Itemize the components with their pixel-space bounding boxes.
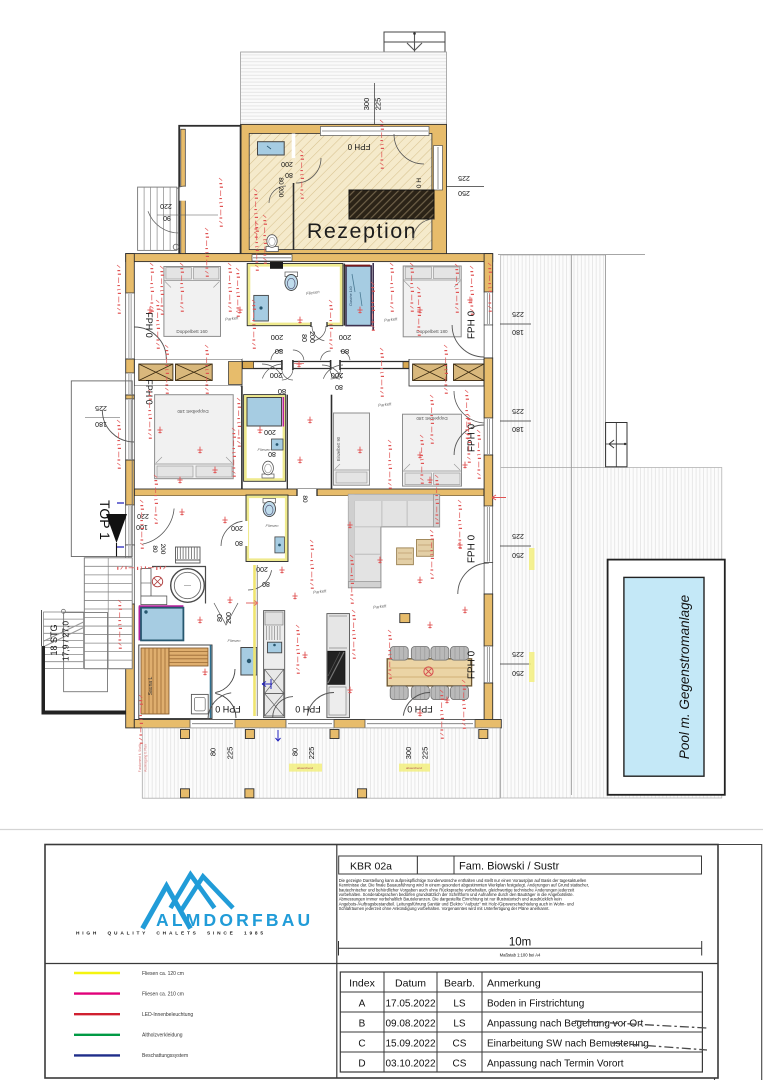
svg-text:LED-Innenbeleuchtung: LED-Innenbeleuchtung [142,1012,193,1018]
svg-text:Einzelbett 90: Einzelbett 90 [336,436,341,461]
svg-text:80: 80 [341,347,349,356]
svg-text:80: 80 [151,545,158,553]
svg-text:250: 250 [512,551,524,558]
svg-text:80: 80 [235,539,243,546]
svg-text:KBR 02a: KBR 02a [350,861,392,873]
svg-text:225: 225 [307,747,316,760]
svg-text:80: 80 [291,748,300,756]
svg-text:Index: Index [349,978,375,990]
svg-text:0 H: 0 H [416,178,423,188]
svg-text:250: 250 [458,189,470,196]
svg-text:200: 200 [277,187,284,198]
svg-text:200: 200 [256,565,268,572]
svg-text:D: D [358,1059,365,1070]
svg-text:Fliesen ca. 210 cm: Fliesen ca. 210 cm [142,991,184,997]
svg-text:FPH 0: FPH 0 [144,312,154,338]
svg-text:Rezeption: Rezeption [307,219,417,243]
svg-text:225: 225 [95,404,107,411]
svg-text:LS: LS [453,999,466,1010]
svg-text:09.08.2022: 09.08.2022 [385,1019,435,1030]
svg-text:Fliesen ca. 120 cm: Fliesen ca. 120 cm [142,971,184,977]
svg-text:Anmerkung: Anmerkung [487,978,541,990]
svg-text:A: A [359,999,366,1010]
svg-text:LS: LS [453,1019,466,1030]
svg-text:220: 220 [137,512,149,519]
svg-text:CS: CS [453,1059,467,1070]
svg-text:200: 200 [264,428,276,435]
svg-text:HIGH QUALITY CHALETS SINCE 198: HIGH QUALITY CHALETS SINCE 1985 [76,931,266,937]
svg-text:225: 225 [512,650,524,657]
svg-text:225: 225 [374,98,383,111]
svg-text:200: 200 [281,160,293,167]
svg-text:200: 200 [270,371,283,380]
svg-text:15.09.2022: 15.09.2022 [385,1039,435,1050]
svg-text:C: C [358,1039,365,1050]
svg-text:Fliesen: Fliesen [228,638,242,643]
svg-text:80: 80 [300,334,307,342]
svg-text:Pool m. Gegenstromanlage: Pool m. Gegenstromanlage [677,595,692,759]
svg-text:200: 200 [271,333,284,342]
svg-text:300: 300 [362,98,371,111]
svg-text:FPH 0: FPH 0 [215,704,241,714]
svg-text:80: 80 [285,171,293,178]
svg-text:225: 225 [512,310,524,317]
svg-text:ALMDORFBAU: ALMDORFBAU [156,910,313,930]
svg-text:Maßstab 1:100 bei A4: Maßstab 1:100 bei A4 [500,953,541,958]
svg-text:10m: 10m [509,937,531,949]
svg-text:180: 180 [512,425,524,432]
svg-text:Doppelbett 180: Doppelbett 180 [416,416,448,421]
svg-text:Doppelbett 160: Doppelbett 160 [176,329,208,334]
svg-text:abweichend: abweichend [406,766,422,770]
svg-text:Doppelbett 180: Doppelbett 180 [177,409,209,414]
svg-text:80: 80 [335,383,343,390]
svg-text:80: 80 [209,748,218,756]
svg-text:FPH 0: FPH 0 [295,704,321,714]
svg-text:200: 200 [339,333,352,342]
svg-text:Anpassung nach Termin Vorort: Anpassung nach Termin Vorort [487,1059,624,1070]
svg-text:80: 80 [275,347,283,356]
svg-text:225: 225 [512,407,524,414]
svg-text:Fliesen: Fliesen [266,523,280,528]
svg-text:03.10.2022: 03.10.2022 [385,1059,435,1070]
svg-text:Bearb.: Bearb. [444,978,475,990]
svg-text:225: 225 [420,747,429,760]
svg-text:Boden in Firstrichtung: Boden in Firstrichtung [487,999,584,1010]
svg-text:FPH 0: FPH 0 [467,534,478,563]
svg-text:Doppelbett 180: Doppelbett 180 [416,329,448,334]
svg-text:180: 180 [95,420,107,427]
svg-text:Schlafräumen jederzeit ohne An: Schlafräumen jederzeit ohne Ankündigung … [339,906,550,911]
svg-text:18 STG: 18 STG [49,624,59,655]
svg-text:200: 200 [159,544,166,555]
svg-text:80: 80 [262,580,270,587]
svg-text:Auskragung lt. Plan: Auskragung lt. Plan [144,744,148,772]
svg-text:Beschattungssystem: Beschattungssystem [142,1053,188,1059]
svg-text:225: 225 [225,747,234,760]
svg-text:250: 250 [512,669,524,676]
svg-text:225: 225 [512,532,524,539]
svg-text:Datum: Datum [395,978,426,990]
svg-text:abweichend: abweichend [297,766,313,770]
svg-text:17.05.2022: 17.05.2022 [385,999,435,1010]
svg-text:B: B [359,1019,366,1030]
svg-text:17,9 / 27,0: 17,9 / 27,0 [61,621,71,661]
svg-text:180: 180 [512,328,524,335]
svg-text:Dusche 140: Dusche 140 [349,286,353,305]
svg-text:80: 80 [277,177,284,185]
svg-text:FPH 0: FPH 0 [347,142,370,151]
svg-text:Anpassung nach Begehung vor Or: Anpassung nach Begehung vor Ort [487,1019,643,1030]
svg-text:80: 80 [268,450,276,457]
svg-text:220: 220 [160,202,172,209]
svg-text:Fam. Biowski / Sustr: Fam. Biowski / Sustr [459,861,560,873]
svg-text:FPH 0: FPH 0 [144,379,154,405]
svg-text:FPH 0: FPH 0 [467,650,478,679]
svg-text:Fundament lt. Statik: Fundament lt. Statik [138,743,142,772]
svg-text:80: 80 [301,495,308,503]
svg-text:Altholzverkleidung: Altholzverkleidung [142,1033,183,1039]
svg-text:300: 300 [404,747,413,760]
svg-text:200: 200 [331,371,344,380]
svg-text:CS: CS [453,1039,467,1050]
svg-text:200: 200 [231,524,243,531]
svg-text:225: 225 [458,174,470,181]
svg-text:Sauna L: Sauna L [148,676,154,695]
